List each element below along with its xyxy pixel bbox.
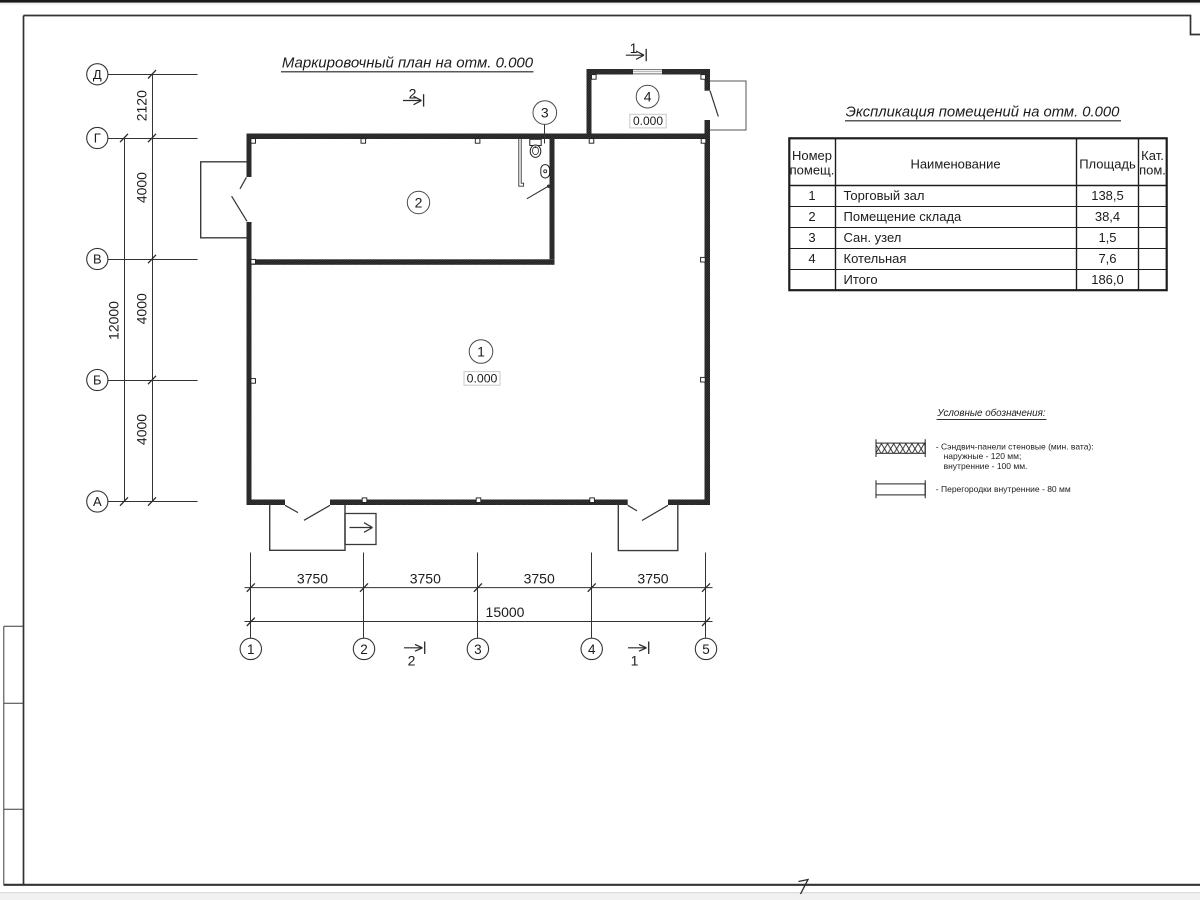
svg-text:4: 4 [808,251,815,266]
svg-text:А: А [93,494,102,509]
svg-text:0.000: 0.000 [467,371,498,385]
svg-text:38,4: 38,4 [1095,209,1120,224]
svg-text:2: 2 [360,642,368,657]
svg-text:2120: 2120 [134,90,150,121]
svg-text:4000: 4000 [134,414,150,445]
svg-text:2: 2 [415,195,423,211]
svg-text:15000: 15000 [486,604,525,620]
svg-text:4: 4 [588,642,596,657]
svg-text:Номер: Номер [792,148,832,163]
svg-text:4000: 4000 [134,172,150,203]
svg-text:1: 1 [247,642,255,657]
svg-text:Экспликация помещений на отм.: Экспликация помещений на отм. 0.000 [846,105,1120,121]
svg-text:0.000: 0.000 [633,114,663,128]
svg-text:- Сэндвич-панели стеновые (мин: - Сэндвич-панели стеновые (мин. вата): [936,441,1094,451]
svg-text:пом.: пом. [1139,163,1166,178]
svg-text:Площадь: Площадь [1079,157,1136,172]
svg-text:Кат.: Кат. [1141,148,1164,163]
svg-text:Б: Б [93,373,102,388]
svg-text:2: 2 [408,653,416,669]
svg-text:Помещение склада: Помещение склада [844,209,963,224]
svg-text:4000: 4000 [134,293,150,324]
svg-text:Наименование: Наименование [910,157,1000,172]
svg-text:7,6: 7,6 [1098,251,1116,266]
svg-text:12000: 12000 [106,301,122,340]
svg-text:Котельная: Котельная [844,251,907,266]
svg-text:1: 1 [631,653,639,669]
svg-text:1: 1 [630,40,638,56]
svg-text:Итого: Итого [844,272,878,287]
svg-text:3: 3 [474,642,482,657]
svg-text:1,5: 1,5 [1098,230,1116,245]
svg-text:Г: Г [94,131,101,146]
svg-text:Д: Д [93,67,102,82]
svg-text:1: 1 [808,188,815,203]
svg-text:3750: 3750 [524,571,555,587]
svg-text:В: В [93,252,102,267]
svg-text:186,0: 186,0 [1091,272,1124,287]
svg-text:Сан. узел: Сан. узел [844,230,902,245]
svg-text:Условные обозначения:: Условные обозначения: [936,408,1045,419]
svg-text:3750: 3750 [410,571,441,587]
svg-text:наружные - 120 мм;: наружные - 120 мм; [944,451,1022,461]
svg-text:5: 5 [702,642,710,657]
svg-text:3: 3 [541,105,549,121]
svg-text:помещ.: помещ. [790,163,835,178]
svg-text:2: 2 [808,209,815,224]
svg-text:внутренние - 100 мм.: внутренние - 100 мм. [944,461,1028,471]
svg-text:138,5: 138,5 [1091,188,1124,203]
svg-text:- Перегородки внутренние - 80: - Перегородки внутренние - 80 мм [936,484,1071,494]
svg-text:3750: 3750 [637,571,668,587]
svg-text:3750: 3750 [297,571,328,587]
svg-text:3: 3 [808,230,815,245]
svg-text:Торговый зал: Торговый зал [844,188,925,203]
svg-text:1: 1 [477,344,485,360]
svg-text:Маркировочный план на отм. 0.0: Маркировочный план на отм. 0.000 [282,55,534,72]
svg-text:2: 2 [409,85,417,101]
svg-text:4: 4 [644,89,652,105]
